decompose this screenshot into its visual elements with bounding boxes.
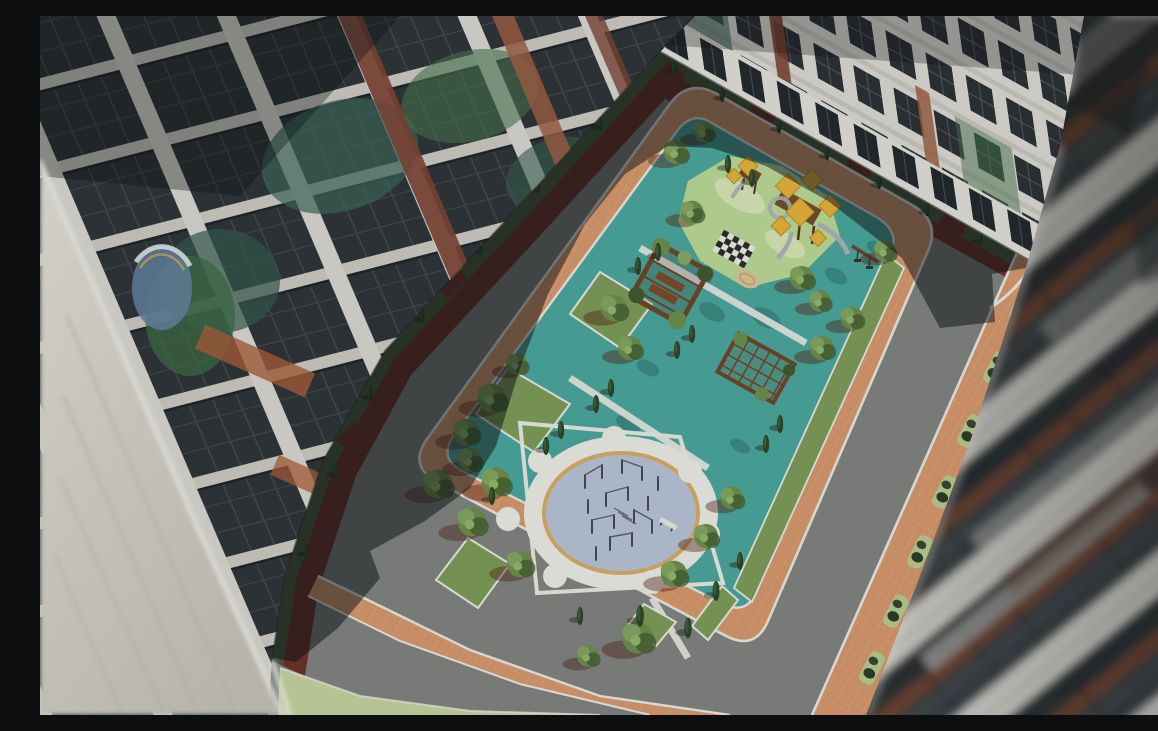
architectural-render: Aerial 3D render of a residential courty… (40, 16, 1158, 715)
vignette (40, 16, 1158, 715)
courtyard-scene: Aerial 3D render of a residential courty… (40, 16, 1158, 715)
